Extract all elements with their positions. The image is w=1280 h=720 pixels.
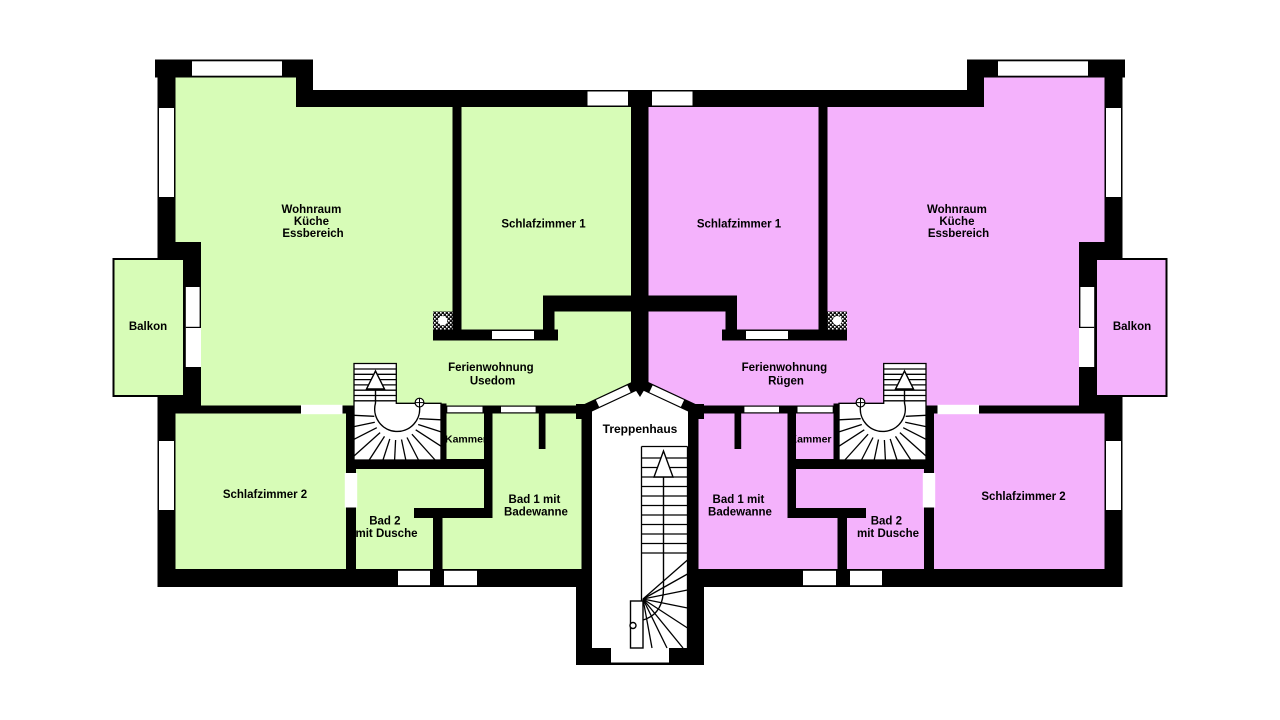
svg-text:Schlafzimmer 1: Schlafzimmer 1	[501, 219, 586, 231]
svg-text:Kammer: Kammer	[445, 434, 487, 446]
svg-text:Balkon: Balkon	[1113, 321, 1151, 333]
svg-text:Bad 1 mit Badewanne: Bad 1 mit Badewanne	[708, 494, 772, 519]
svg-text:Bad 1 mit Badewanne: Bad 1 mit Badewanne	[504, 494, 568, 519]
svg-text:Schlafzimmer 1: Schlafzimmer 1	[697, 219, 782, 231]
svg-text:Treppenhaus: Treppenhaus	[603, 422, 678, 436]
svg-text:Schlafzimmer 2: Schlafzimmer 2	[223, 489, 307, 501]
svg-text:Balkon: Balkon	[129, 321, 167, 333]
svg-text:Kammer: Kammer	[789, 434, 831, 446]
svg-text:Schlafzimmer 2: Schlafzimmer 2	[981, 491, 1065, 503]
